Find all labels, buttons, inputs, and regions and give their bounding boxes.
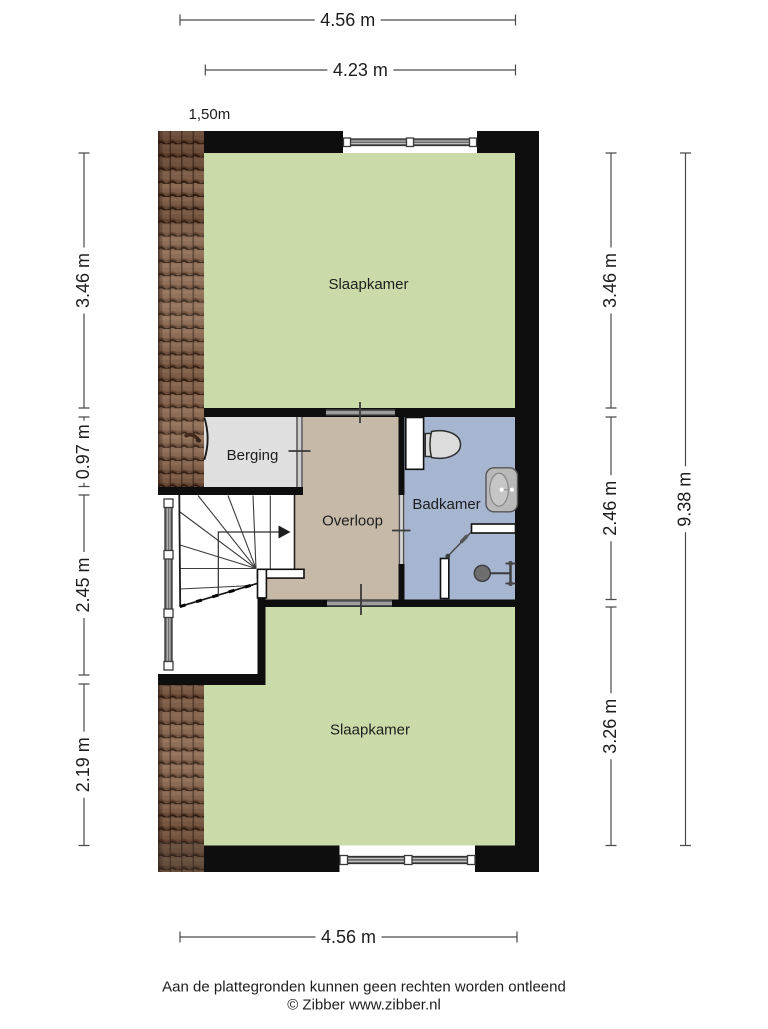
svg-text:4.56 m: 4.56 m (320, 10, 375, 30)
svg-text:2.45 m: 2.45 m (73, 557, 93, 612)
svg-text:Aan de plattegronden kunnen ge: Aan de plattegronden kunnen geen rechten… (162, 979, 566, 996)
svg-text:2.46 m: 2.46 m (600, 481, 620, 536)
svg-text:3.26 m: 3.26 m (600, 699, 620, 754)
svg-text:0.97 m: 0.97 m (73, 424, 93, 479)
svg-text:Overloop: Overloop (322, 513, 383, 530)
svg-text:Berging: Berging (227, 447, 279, 464)
svg-text:4.23 m: 4.23 m (333, 60, 388, 80)
svg-text:2.19 m: 2.19 m (73, 737, 93, 792)
svg-text:1,50m: 1,50m (189, 106, 231, 123)
svg-text:Slaapkamer: Slaapkamer (330, 722, 410, 739)
svg-text:© Zibber www.zibber.nl: © Zibber www.zibber.nl (287, 997, 441, 1014)
svg-text:3.46 m: 3.46 m (600, 253, 620, 308)
svg-text:Slaapkamer: Slaapkamer (328, 276, 408, 293)
svg-text:3.46 m: 3.46 m (73, 253, 93, 308)
svg-text:Badkamer: Badkamer (412, 496, 480, 513)
svg-text:9.38 m: 9.38 m (675, 472, 695, 527)
svg-text:4.56 m: 4.56 m (321, 927, 376, 947)
